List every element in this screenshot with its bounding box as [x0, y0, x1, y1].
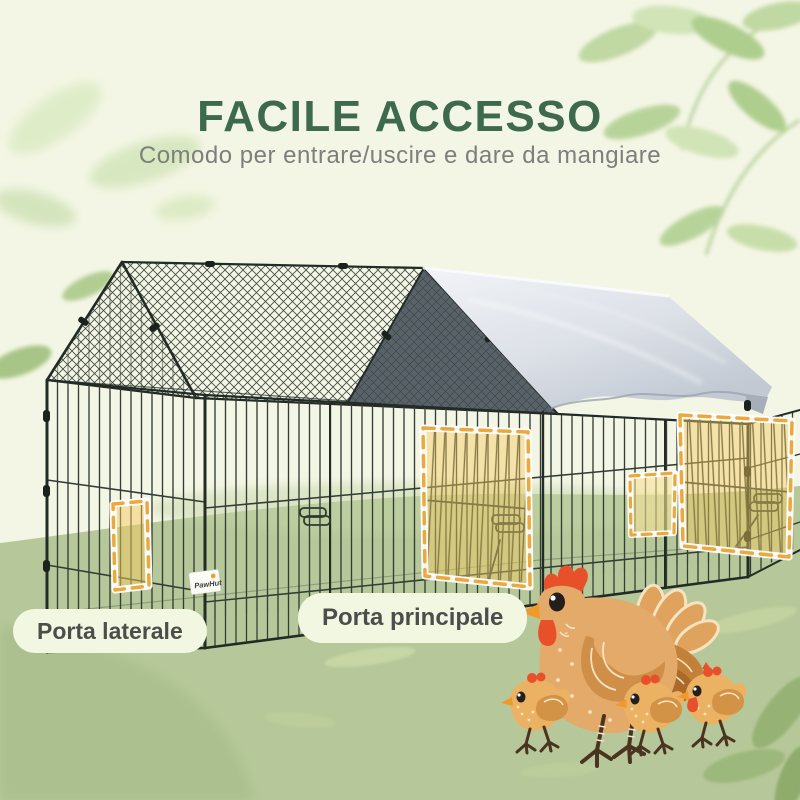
side-door-highlight [113, 501, 149, 590]
side-door-label: Porta laterale [13, 609, 207, 653]
main-door-label-text: Porta principale [322, 604, 503, 632]
marketing-hero: PawHut [0, 0, 800, 800]
small-panel-highlight [630, 473, 675, 535]
page-subtitle: Comodo per entrare/uscire e dare da mang… [0, 142, 800, 170]
brand-plate: PawHut [189, 569, 223, 595]
right-door-highlight [680, 415, 792, 557]
main-door-highlight [423, 428, 530, 587]
page-title: FACILE ACCESSO [0, 92, 800, 142]
main-door-label: Porta principale [298, 593, 527, 643]
side-door-label-text: Porta laterale [37, 618, 183, 645]
